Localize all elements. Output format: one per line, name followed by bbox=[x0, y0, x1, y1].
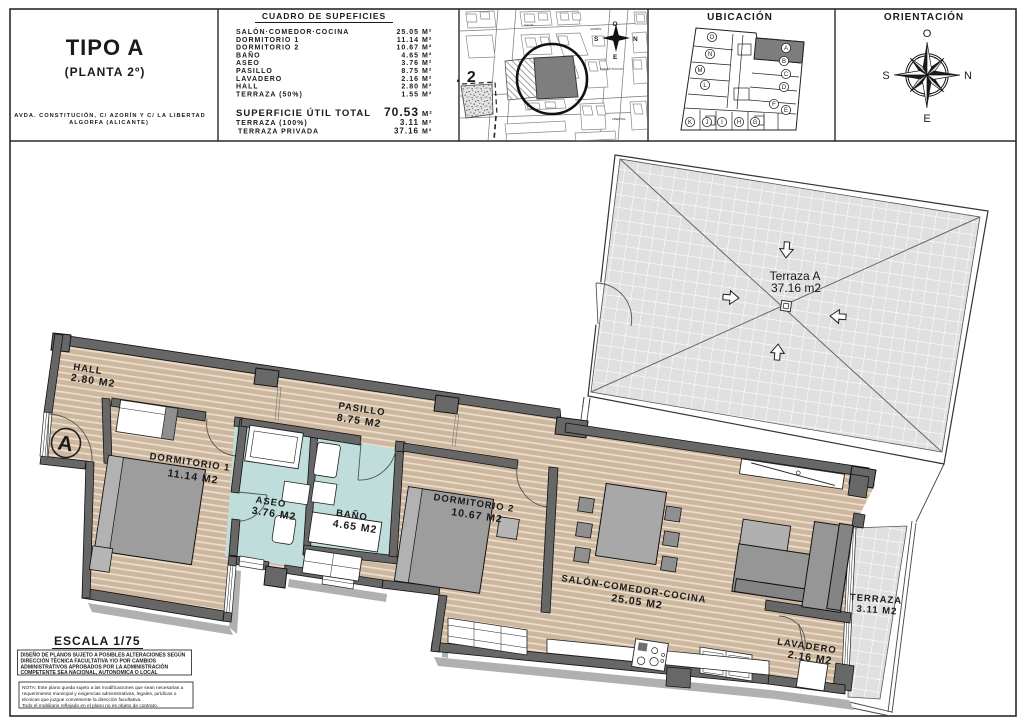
svg-text:10.67: 10.67 bbox=[396, 45, 419, 52]
svg-text:2.80: 2.80 bbox=[401, 84, 419, 91]
svg-text:PASILLO: PASILLO bbox=[236, 68, 273, 75]
svg-text:CALLE: CALLE bbox=[524, 23, 534, 27]
svg-text:4.65: 4.65 bbox=[401, 52, 419, 59]
svg-text:C: C bbox=[784, 72, 789, 78]
svg-text:A: A bbox=[784, 46, 788, 52]
svg-text:M²: M² bbox=[422, 84, 432, 91]
svg-text:HALL: HALL bbox=[236, 84, 259, 91]
svg-text:1.55: 1.55 bbox=[401, 91, 419, 98]
svg-text:ORIENTACIÓN: ORIENTACIÓN bbox=[884, 10, 964, 23]
svg-text:M²: M² bbox=[422, 76, 432, 83]
svg-text:AVDA. CONSTITUCIÓN, C/ AZORÍN: AVDA. CONSTITUCIÓN, C/ AZORÍN Y C/ LA LI… bbox=[14, 111, 205, 119]
svg-text:LAVADERO: LAVADERO bbox=[236, 76, 282, 83]
svg-text:(PLANTA 2º): (PLANTA 2º) bbox=[65, 65, 146, 79]
svg-text:M²: M² bbox=[422, 91, 432, 98]
svg-text:E: E bbox=[923, 113, 930, 125]
svg-text:COMPETENTE SEA NACIONAL, AUTON: COMPETENTE SEA NACIONAL, AUTONOMICA O LO… bbox=[21, 670, 158, 676]
svg-text:N: N bbox=[964, 70, 972, 82]
svg-text:DORMITORIO 2: DORMITORIO 2 bbox=[236, 45, 299, 52]
svg-text:O: O bbox=[923, 28, 932, 40]
svg-text:M²: M² bbox=[422, 52, 432, 59]
svg-text:CONSTITUCION: CONSTITUCION bbox=[600, 67, 623, 71]
svg-text:H: H bbox=[737, 120, 741, 126]
svg-text:técnicas que juzgue convenient: técnicas que juzgue conveniente la direc… bbox=[22, 697, 141, 703]
svg-text:N: N bbox=[633, 36, 638, 43]
svg-text:DIRECCIÓN TÉCNICA FACULTATIVA: DIRECCIÓN TÉCNICA FACULTATIVA Y/O POR CA… bbox=[21, 657, 157, 665]
svg-text:TERRAZA (100%): TERRAZA (100%) bbox=[236, 120, 308, 127]
svg-text:TERRAZA PRIVADA: TERRAZA PRIVADA bbox=[238, 129, 319, 136]
svg-text:3.76: 3.76 bbox=[401, 60, 419, 67]
svg-text:8.75: 8.75 bbox=[401, 68, 419, 75]
svg-text:37.16: 37.16 bbox=[394, 127, 419, 136]
svg-text:LIBERTAL: LIBERTAL bbox=[612, 117, 626, 121]
svg-text:M: M bbox=[698, 68, 703, 74]
svg-text:M²: M² bbox=[422, 29, 432, 36]
svg-text:ALGORFA (ALICANTE): ALGORFA (ALICANTE) bbox=[69, 120, 149, 126]
svg-text:ASEO: ASEO bbox=[236, 60, 260, 67]
svg-text:M²: M² bbox=[422, 60, 432, 67]
svg-text:O: O bbox=[613, 21, 618, 28]
svg-text:E: E bbox=[784, 108, 788, 114]
svg-text:M²: M² bbox=[422, 37, 432, 44]
svg-text:37.16 m2: 37.16 m2 bbox=[771, 281, 821, 295]
svg-text:ESCALA 1/75: ESCALA 1/75 bbox=[54, 634, 141, 648]
svg-text:D: D bbox=[782, 85, 787, 91]
svg-text:UBICACIÓN: UBICACIÓN bbox=[707, 10, 773, 23]
svg-text:SUPERFICIE ÚTIL TOTAL: SUPERFICIE ÚTIL TOTAL bbox=[236, 107, 371, 119]
svg-text:K: K bbox=[688, 120, 692, 126]
svg-text:S: S bbox=[594, 36, 599, 43]
svg-text:DORMITORIO 1: DORMITORIO 1 bbox=[236, 37, 299, 44]
svg-text:A: A bbox=[56, 431, 75, 456]
svg-text:O: O bbox=[710, 35, 715, 41]
svg-text:M²: M² bbox=[422, 45, 432, 52]
svg-text:DISEÑO DE PLANOS SUJETO A POSI: DISEÑO DE PLANOS SUJETO A POSIBLES ALTER… bbox=[21, 652, 186, 659]
svg-text:25.05: 25.05 bbox=[396, 29, 419, 36]
svg-text:E: E bbox=[613, 54, 618, 61]
svg-text:BAÑO: BAÑO bbox=[236, 50, 261, 59]
svg-text:SALÓN·COMEDOR·COCINA: SALÓN·COMEDOR·COCINA bbox=[236, 27, 349, 36]
svg-text:CUADRO DE SUPEFICIES: CUADRO DE SUPEFICIES bbox=[262, 11, 386, 21]
svg-text:M²: M² bbox=[422, 129, 432, 136]
svg-text:S: S bbox=[882, 70, 889, 82]
svg-text:NOTA: Este plano queda sujeto: NOTA: Este plano queda sujeto a las modi… bbox=[22, 685, 184, 691]
svg-text:requerimiento municipal y exig: requerimiento municipal y exigencias adm… bbox=[22, 691, 177, 697]
svg-text:M²: M² bbox=[422, 68, 432, 75]
svg-text:M²: M² bbox=[422, 120, 432, 127]
svg-text:TIPO A: TIPO A bbox=[66, 35, 145, 60]
svg-text:TERRAZA (50%): TERRAZA (50%) bbox=[236, 91, 303, 98]
svg-text:AZORIN: AZORIN bbox=[590, 27, 601, 31]
svg-text:F: F bbox=[772, 102, 776, 108]
svg-text:M²: M² bbox=[422, 109, 433, 118]
svg-text:B: B bbox=[782, 59, 786, 65]
svg-text:70.53: 70.53 bbox=[384, 105, 419, 119]
svg-text:Todo el mobiliario reflejado e: Todo el mobiliario reflejado en el plano… bbox=[22, 703, 158, 709]
svg-text:N: N bbox=[708, 52, 712, 58]
svg-text:11.14: 11.14 bbox=[397, 37, 419, 44]
svg-text:G: G bbox=[753, 120, 758, 126]
svg-text:2.16: 2.16 bbox=[401, 76, 419, 83]
svg-text:J: J bbox=[706, 120, 709, 126]
